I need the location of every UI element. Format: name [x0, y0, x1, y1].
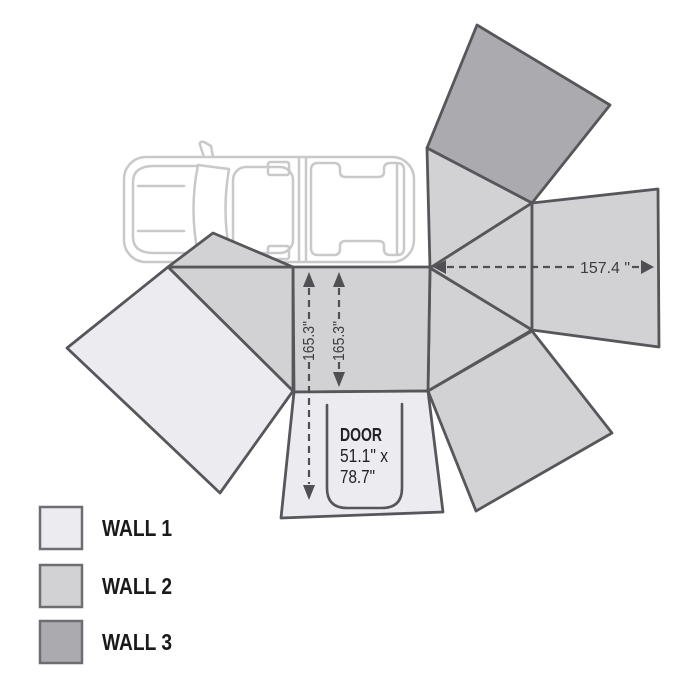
car-front-bumper-line — [133, 166, 198, 253]
car-cab-roof — [233, 167, 293, 253]
car-truck-bed-liner — [311, 163, 404, 255]
diagram-canvas: DOOR 51.1" x 78.7" 157.4 " 165.3" 165.3"… — [0, 0, 700, 700]
door-title-label: DOOR — [340, 425, 382, 445]
car-side-mirror — [200, 142, 213, 157]
legend-label-wall3: WALL 3 — [102, 629, 172, 655]
legend-swatch-wall3 — [40, 621, 82, 663]
legend-swatch-wall1 — [40, 507, 82, 549]
legend-label-wall2: WALL 2 — [102, 573, 172, 599]
door-size-line2: 78.7" — [340, 467, 375, 487]
door-size-line1: 51.1" x — [340, 446, 388, 466]
legend-swatch-wall2 — [40, 565, 82, 607]
depth-left-dimension-label: 165.3" — [301, 321, 318, 361]
legend: WALL 1 WALL 2 WALL 3 — [40, 507, 172, 663]
legend-item-wall1: WALL 1 — [40, 507, 172, 549]
depth-right-dimension-label: 165.3" — [331, 321, 348, 361]
legend-item-wall2: WALL 2 — [40, 565, 172, 607]
awning-floorplan-diagram: DOOR 51.1" x 78.7" 157.4 " 165.3" 165.3"… — [0, 0, 700, 700]
panel-wall2-apex-triangle — [168, 233, 293, 267]
width-dimension-label: 157.4 " — [580, 260, 630, 277]
legend-item-wall3: WALL 3 — [40, 621, 172, 663]
legend-label-wall1: WALL 1 — [102, 515, 172, 541]
vehicle-top-view — [124, 142, 414, 262]
